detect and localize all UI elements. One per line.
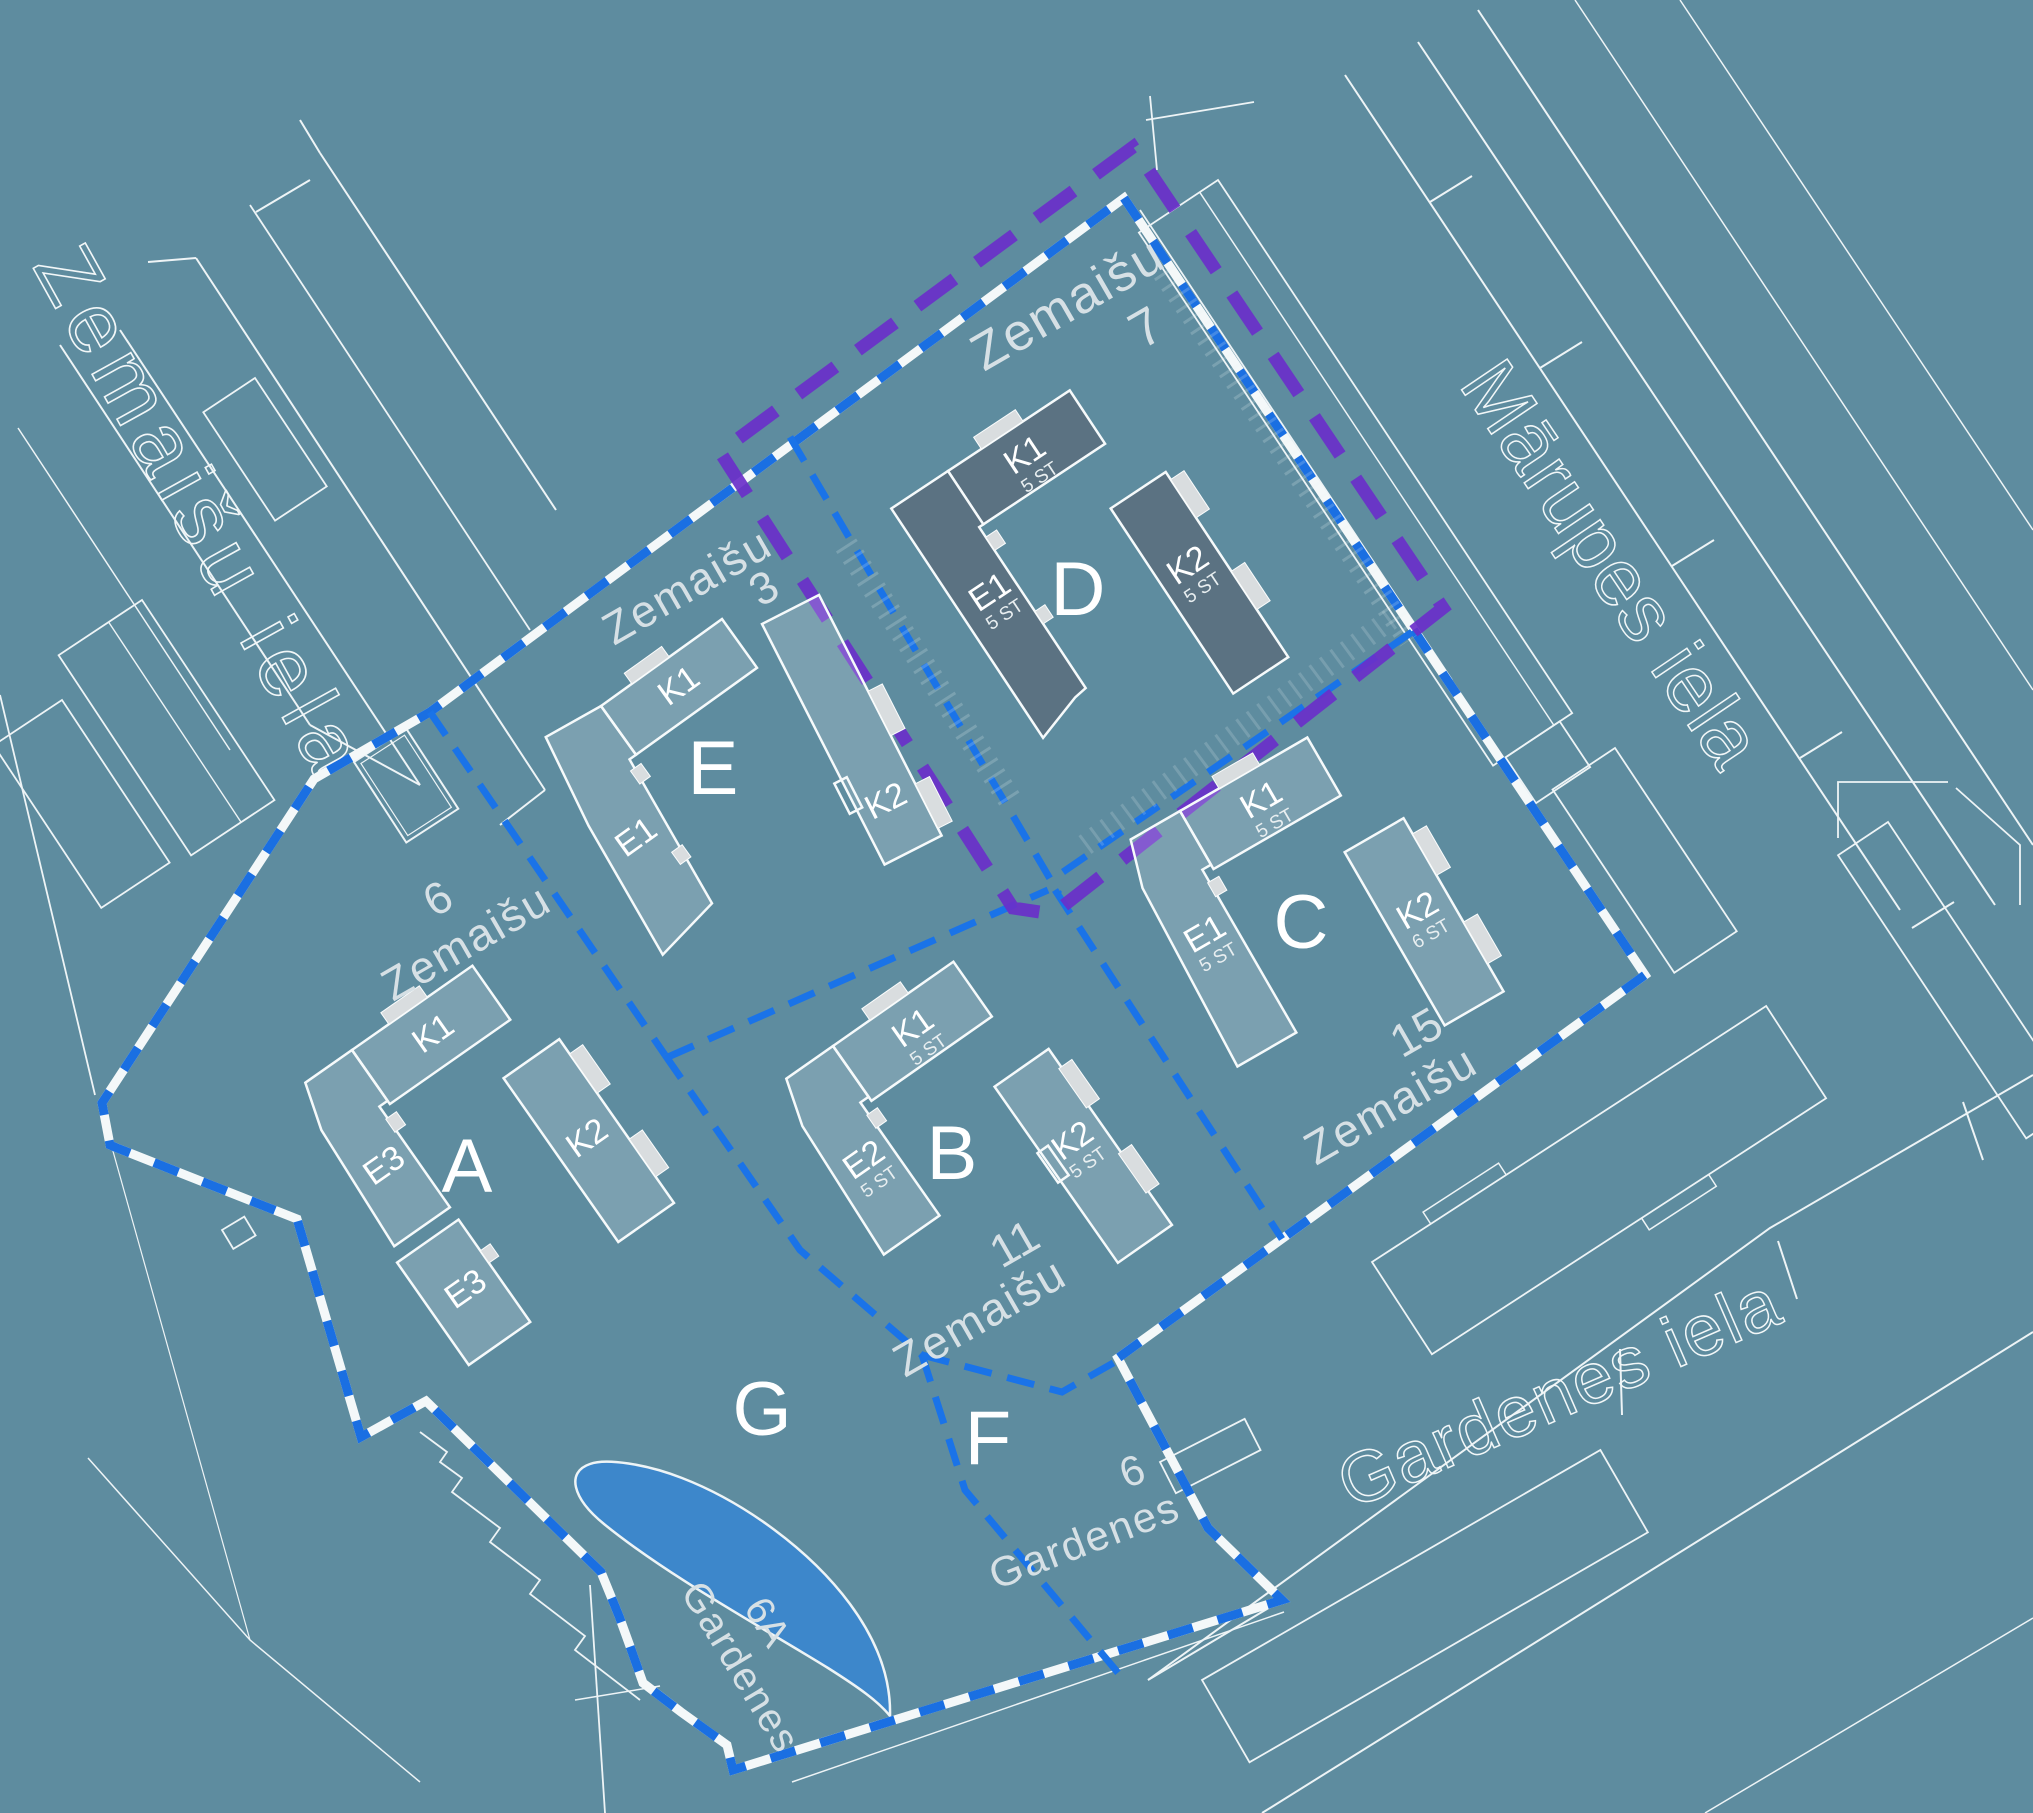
svg-text:F: F <box>965 1396 1011 1481</box>
svg-text:E: E <box>688 726 739 811</box>
svg-text:B: B <box>927 1111 978 1196</box>
svg-text:A: A <box>442 1124 493 1209</box>
svg-text:G: G <box>732 1367 791 1452</box>
svg-text:D: D <box>1051 547 1106 632</box>
svg-text:C: C <box>1274 880 1329 965</box>
